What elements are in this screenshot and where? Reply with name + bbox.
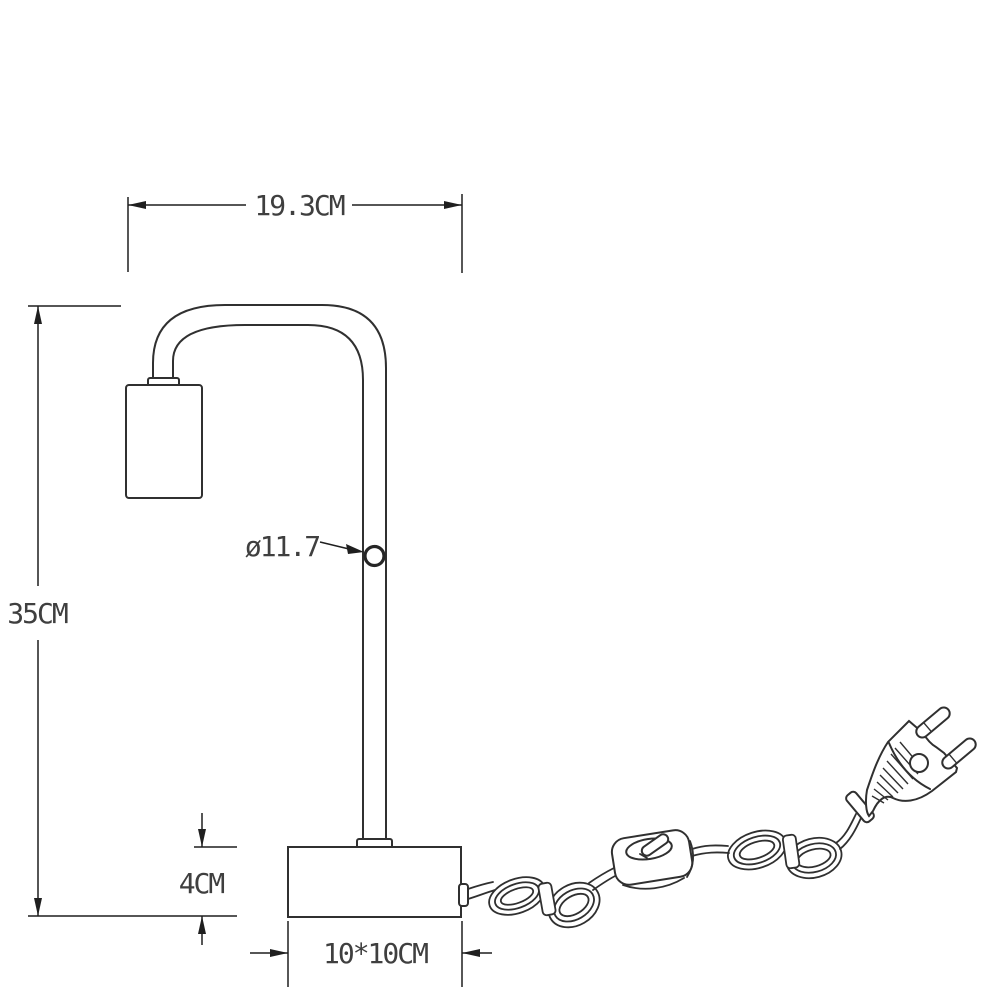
power-cord <box>468 814 861 936</box>
coil-loop <box>491 877 542 915</box>
dimension-base-height: 4CM <box>179 813 237 945</box>
dimension-label-base-height: 4CM <box>179 867 225 900</box>
dimension-label-tube-diameter: ø11.7 <box>245 530 319 563</box>
plug-screw-hole <box>910 754 928 772</box>
arrowhead-left <box>128 201 146 209</box>
cord-exit-nub <box>459 884 468 906</box>
coil-loop <box>556 889 593 921</box>
coil-loop <box>723 824 791 877</box>
dimension-tube-diameter: ø11.7 <box>245 530 364 563</box>
coil-loop <box>730 830 784 870</box>
ball-joint <box>365 547 384 566</box>
leader-line <box>320 542 349 549</box>
cord-segment <box>840 818 861 849</box>
coil-loop <box>499 884 536 909</box>
cord-coil-left <box>484 870 608 936</box>
cord-segment <box>589 868 614 883</box>
technical-drawing: 19.3CM 35CM ø11.7 4CM 10*10CM <box>0 0 1000 1000</box>
arrowhead-right <box>444 201 462 209</box>
euro-two-pin-plug <box>844 705 978 824</box>
arrowhead-down <box>198 829 206 847</box>
cord-segment <box>692 845 728 849</box>
dimension-arm-width: 19.3CM <box>128 189 462 273</box>
arrowhead-right <box>270 949 288 957</box>
coil-wrap-band <box>782 834 799 868</box>
dimension-label-total-height: 35CM <box>7 597 68 630</box>
dimension-label-arm-width: 19.3CM <box>254 189 344 222</box>
base <box>288 847 461 917</box>
plug-pin <box>914 705 952 740</box>
cord-segment <box>836 814 856 843</box>
cord-segment <box>692 852 729 856</box>
leader-arrowhead <box>346 544 364 554</box>
lamp <box>126 305 468 917</box>
lamp-head <box>126 385 202 498</box>
coil-wrap-band <box>538 882 556 916</box>
arrowhead-down <box>34 898 42 916</box>
cord-segment <box>468 882 493 889</box>
arrowhead-up <box>198 916 206 934</box>
arrowhead-left <box>462 949 480 957</box>
cord-coil-right <box>723 824 846 884</box>
arrowhead-up <box>34 306 42 324</box>
drawing-canvas: 19.3CM 35CM ø11.7 4CM 10*10CM <box>0 0 1000 1000</box>
dimension-label-base-size: 10*10CM <box>323 937 428 970</box>
coil-loop <box>548 882 600 929</box>
coil-loop <box>737 837 776 863</box>
dimension-base-size: 10*10CM <box>250 921 492 987</box>
inline-rocker-switch <box>610 828 694 889</box>
switch-body <box>610 828 694 887</box>
